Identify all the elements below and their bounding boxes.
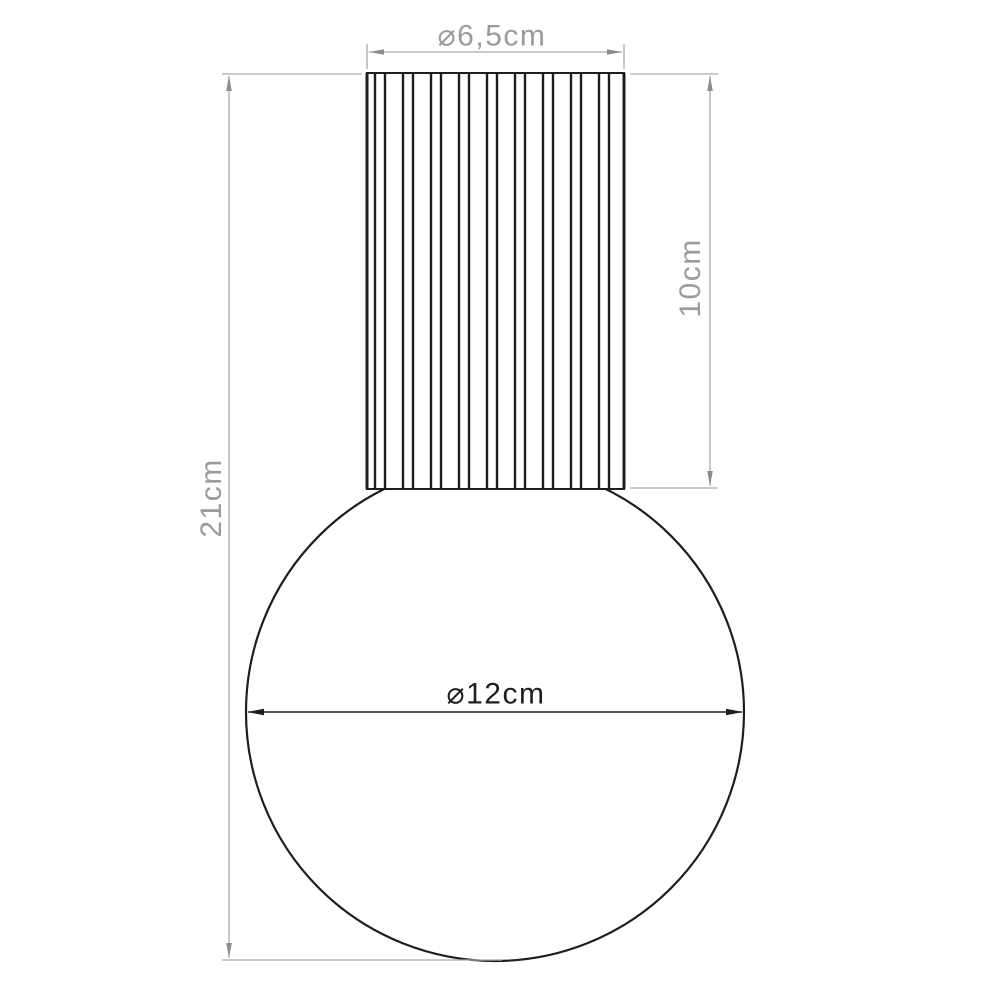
arrow-up-icon [226, 76, 232, 91]
arrow-left-icon [247, 709, 264, 715]
dimension-label-total-height: 21cm [195, 458, 229, 537]
arrow-left-icon [369, 49, 384, 55]
arrow-up-icon [707, 76, 713, 91]
technical-drawing-canvas: ⌀6,5cm 10cm 21cm ⌀12cm [0, 0, 995, 995]
drawing-svg [0, 0, 995, 995]
dimension-label-cylinder-diameter: ⌀6,5cm [438, 19, 547, 54]
arrow-down-icon [226, 943, 232, 958]
cylinder-body [366, 72, 625, 489]
dimension-label-sphere-diameter: ⌀12cm [447, 677, 546, 712]
arrow-down-icon [707, 471, 713, 486]
arrow-right-icon [726, 709, 743, 715]
dimension-label-cylinder-height: 10cm [674, 238, 708, 317]
arrow-right-icon [607, 49, 622, 55]
